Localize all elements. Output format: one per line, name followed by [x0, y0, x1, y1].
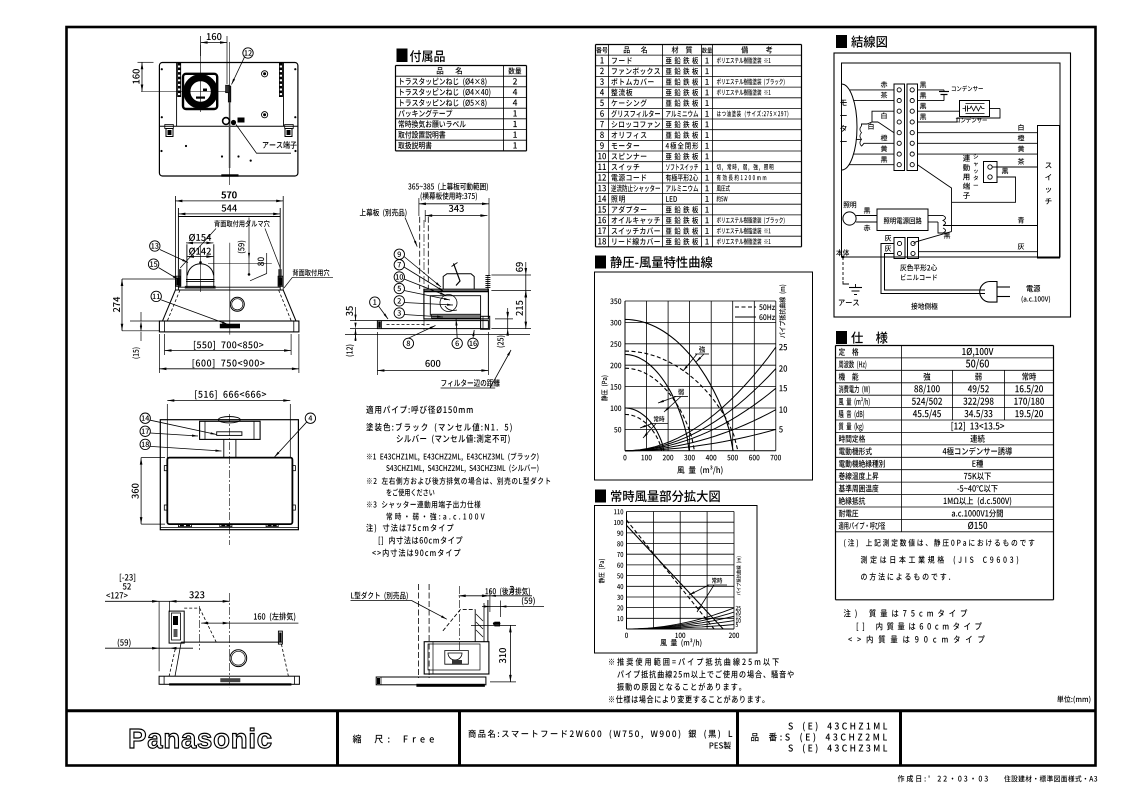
svg-text:Panasonic: Panasonic: [128, 723, 273, 754]
